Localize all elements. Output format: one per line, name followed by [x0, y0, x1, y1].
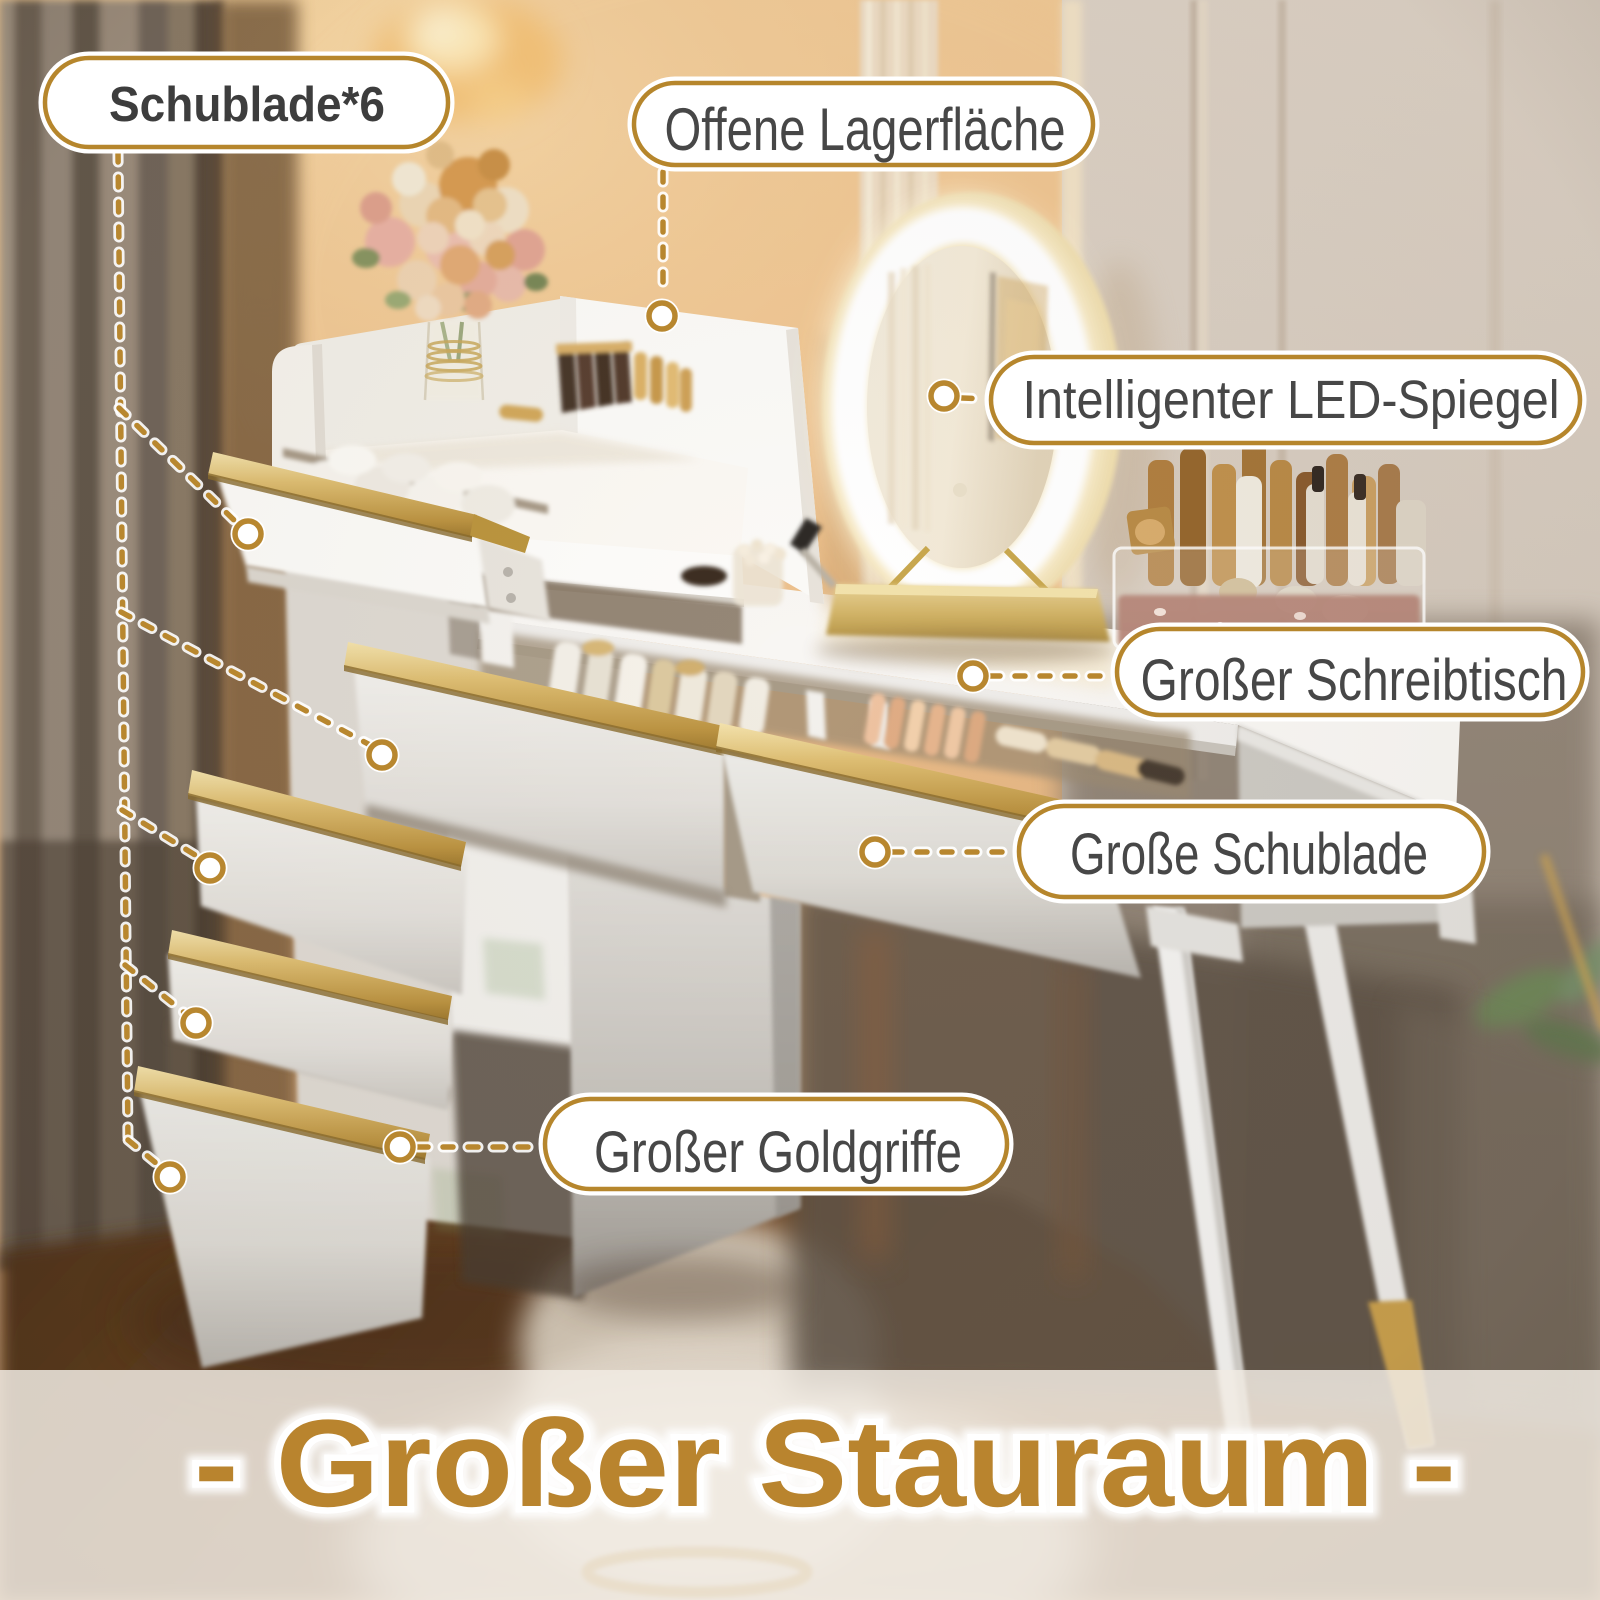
svg-text:Großer Schreibtisch: Großer Schreibtisch	[1141, 648, 1568, 713]
svg-text:Offene Lagerfläche: Offene Lagerfläche	[665, 96, 1066, 163]
svg-text:Großer Goldgriffe: Großer Goldgriffe	[594, 1120, 962, 1185]
svg-text:Intelligenter LED-Spiegel: Intelligenter LED-Spiegel	[1023, 370, 1560, 430]
svg-text:- Großer Stauraum -: - Großer Stauraum -	[194, 1395, 1456, 1533]
svg-text:Schublade*6: Schublade*6	[109, 78, 385, 132]
svg-text:Große Schublade: Große Schublade	[1070, 822, 1428, 887]
